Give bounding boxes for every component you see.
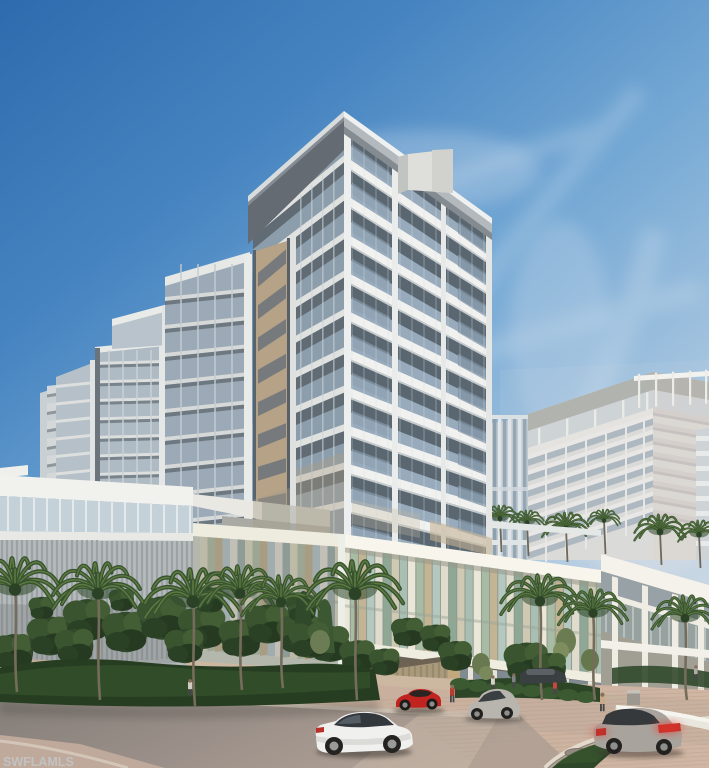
svg-text:SWFLAMLS: SWFLAMLS (3, 755, 74, 768)
